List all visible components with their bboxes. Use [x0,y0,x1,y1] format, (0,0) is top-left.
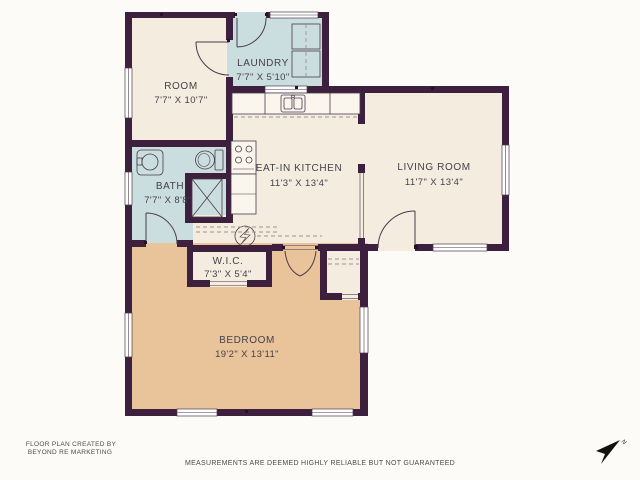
wic-threshold [210,280,247,287]
wic-label: W.I.C. [213,256,244,267]
north-arrow-icon: N [596,439,627,464]
wic-dimensions: 7'3" X 5'4" [204,269,252,280]
laundry-label: LAUNDRY [237,58,289,69]
stove-icon [231,141,256,174]
room-floor [125,12,232,147]
floor-plan-drawing: ROOM 7'7" X 10'7" LAUNDRY 7'7" X 5'10" E… [0,0,640,480]
floor-plan-page: ROOM 7'7" X 10'7" LAUNDRY 7'7" X 5'10" E… [0,0,640,480]
room-fills [125,12,508,416]
bedroom-label: BEDROOM [219,335,275,346]
room-dimensions: 7'7" X 10'7" [154,95,207,106]
room-label: ROOM [164,81,198,92]
bath-label: BATH [156,181,184,192]
living-room-label: LIVING ROOM [397,162,470,173]
credit-line-1: FLOOR PLAN CREATED BY [26,441,117,448]
laundry-dimensions: 7'7" X 5'10" [236,72,289,83]
footer: FLOOR PLAN CREATED BY BEYOND RE MARKETIN… [26,441,455,467]
bath-dimensions: 7'7" X 8'8" [144,195,192,206]
disclaimer: MEASUREMENTS ARE DEEMED HIGHLY RELIABLE … [185,460,455,467]
kitchen-label: EAT-IN KITCHEN [256,163,343,174]
kitchen-dimensions: 11'3" X 13'4" [270,178,328,189]
refrigerator-icon [231,174,256,214]
closet-threshold [342,293,358,300]
credit-line-2: BEYOND RE MARKETING [28,449,112,456]
north-arrow-label: N [620,439,628,447]
living-room-dimensions: 11'7" X 13'4" [405,177,463,188]
kitchen-counter [232,93,360,114]
bedroom-dimensions: 19'2" X 13'11" [215,349,279,360]
